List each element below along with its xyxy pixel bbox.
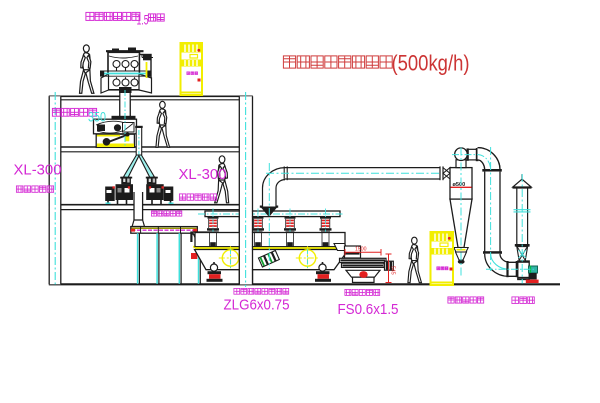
svg-text:350: 350	[88, 109, 106, 125]
svg-text:XL-300: XL-300	[14, 163, 62, 179]
svg-text:ZLG6x0.75: ZLG6x0.75	[224, 297, 290, 314]
svg-text:(500kg/h): (500kg/h)	[392, 51, 470, 76]
svg-text:XL-300: XL-300	[179, 167, 227, 183]
svg-text:FS0.6x1.5: FS0.6x1.5	[338, 301, 399, 318]
svg-text:1.5: 1.5	[137, 13, 149, 28]
svg-text:545: 545	[390, 266, 396, 275]
svg-text:1500: 1500	[355, 247, 367, 253]
svg-text:ø500: ø500	[453, 182, 466, 188]
